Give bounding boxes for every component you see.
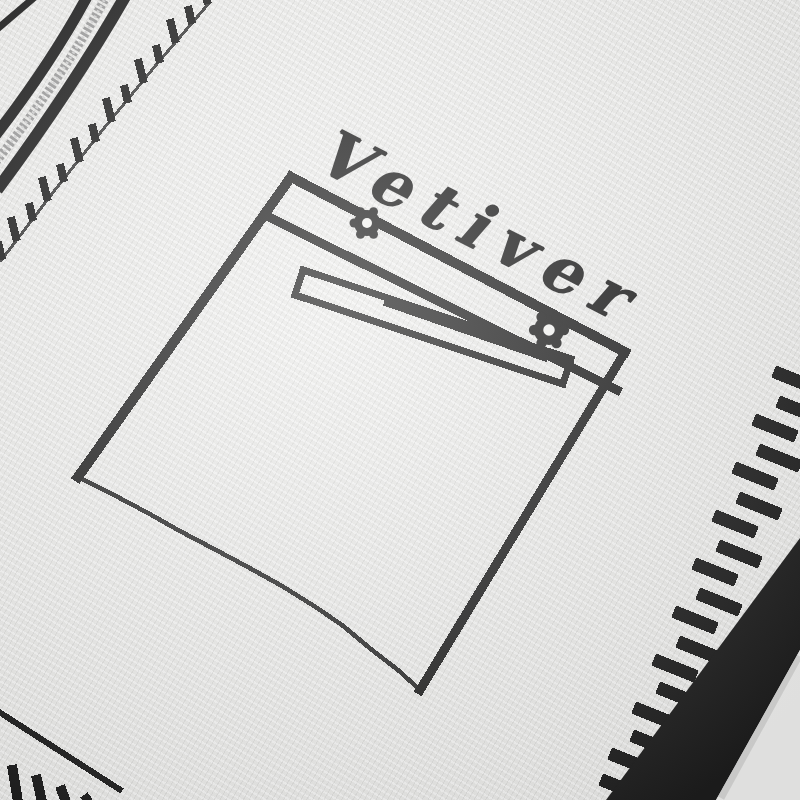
pocket-welt-shadow-bar bbox=[390, 302, 543, 355]
pocket-left-edge bbox=[78, 177, 291, 477]
zipper-teeth-icon bbox=[0, 0, 107, 163]
hem-border-bottom-left bbox=[0, 710, 122, 800]
pocket-bottom-jagged-line bbox=[78, 477, 420, 690]
pocket-right-edge bbox=[420, 352, 625, 690]
garment-seam-line bbox=[0, 0, 36, 30]
zipper bbox=[0, 0, 126, 190]
photo-of-knit-garment: Vetiver bbox=[0, 0, 800, 800]
garment-artwork bbox=[0, 0, 800, 800]
